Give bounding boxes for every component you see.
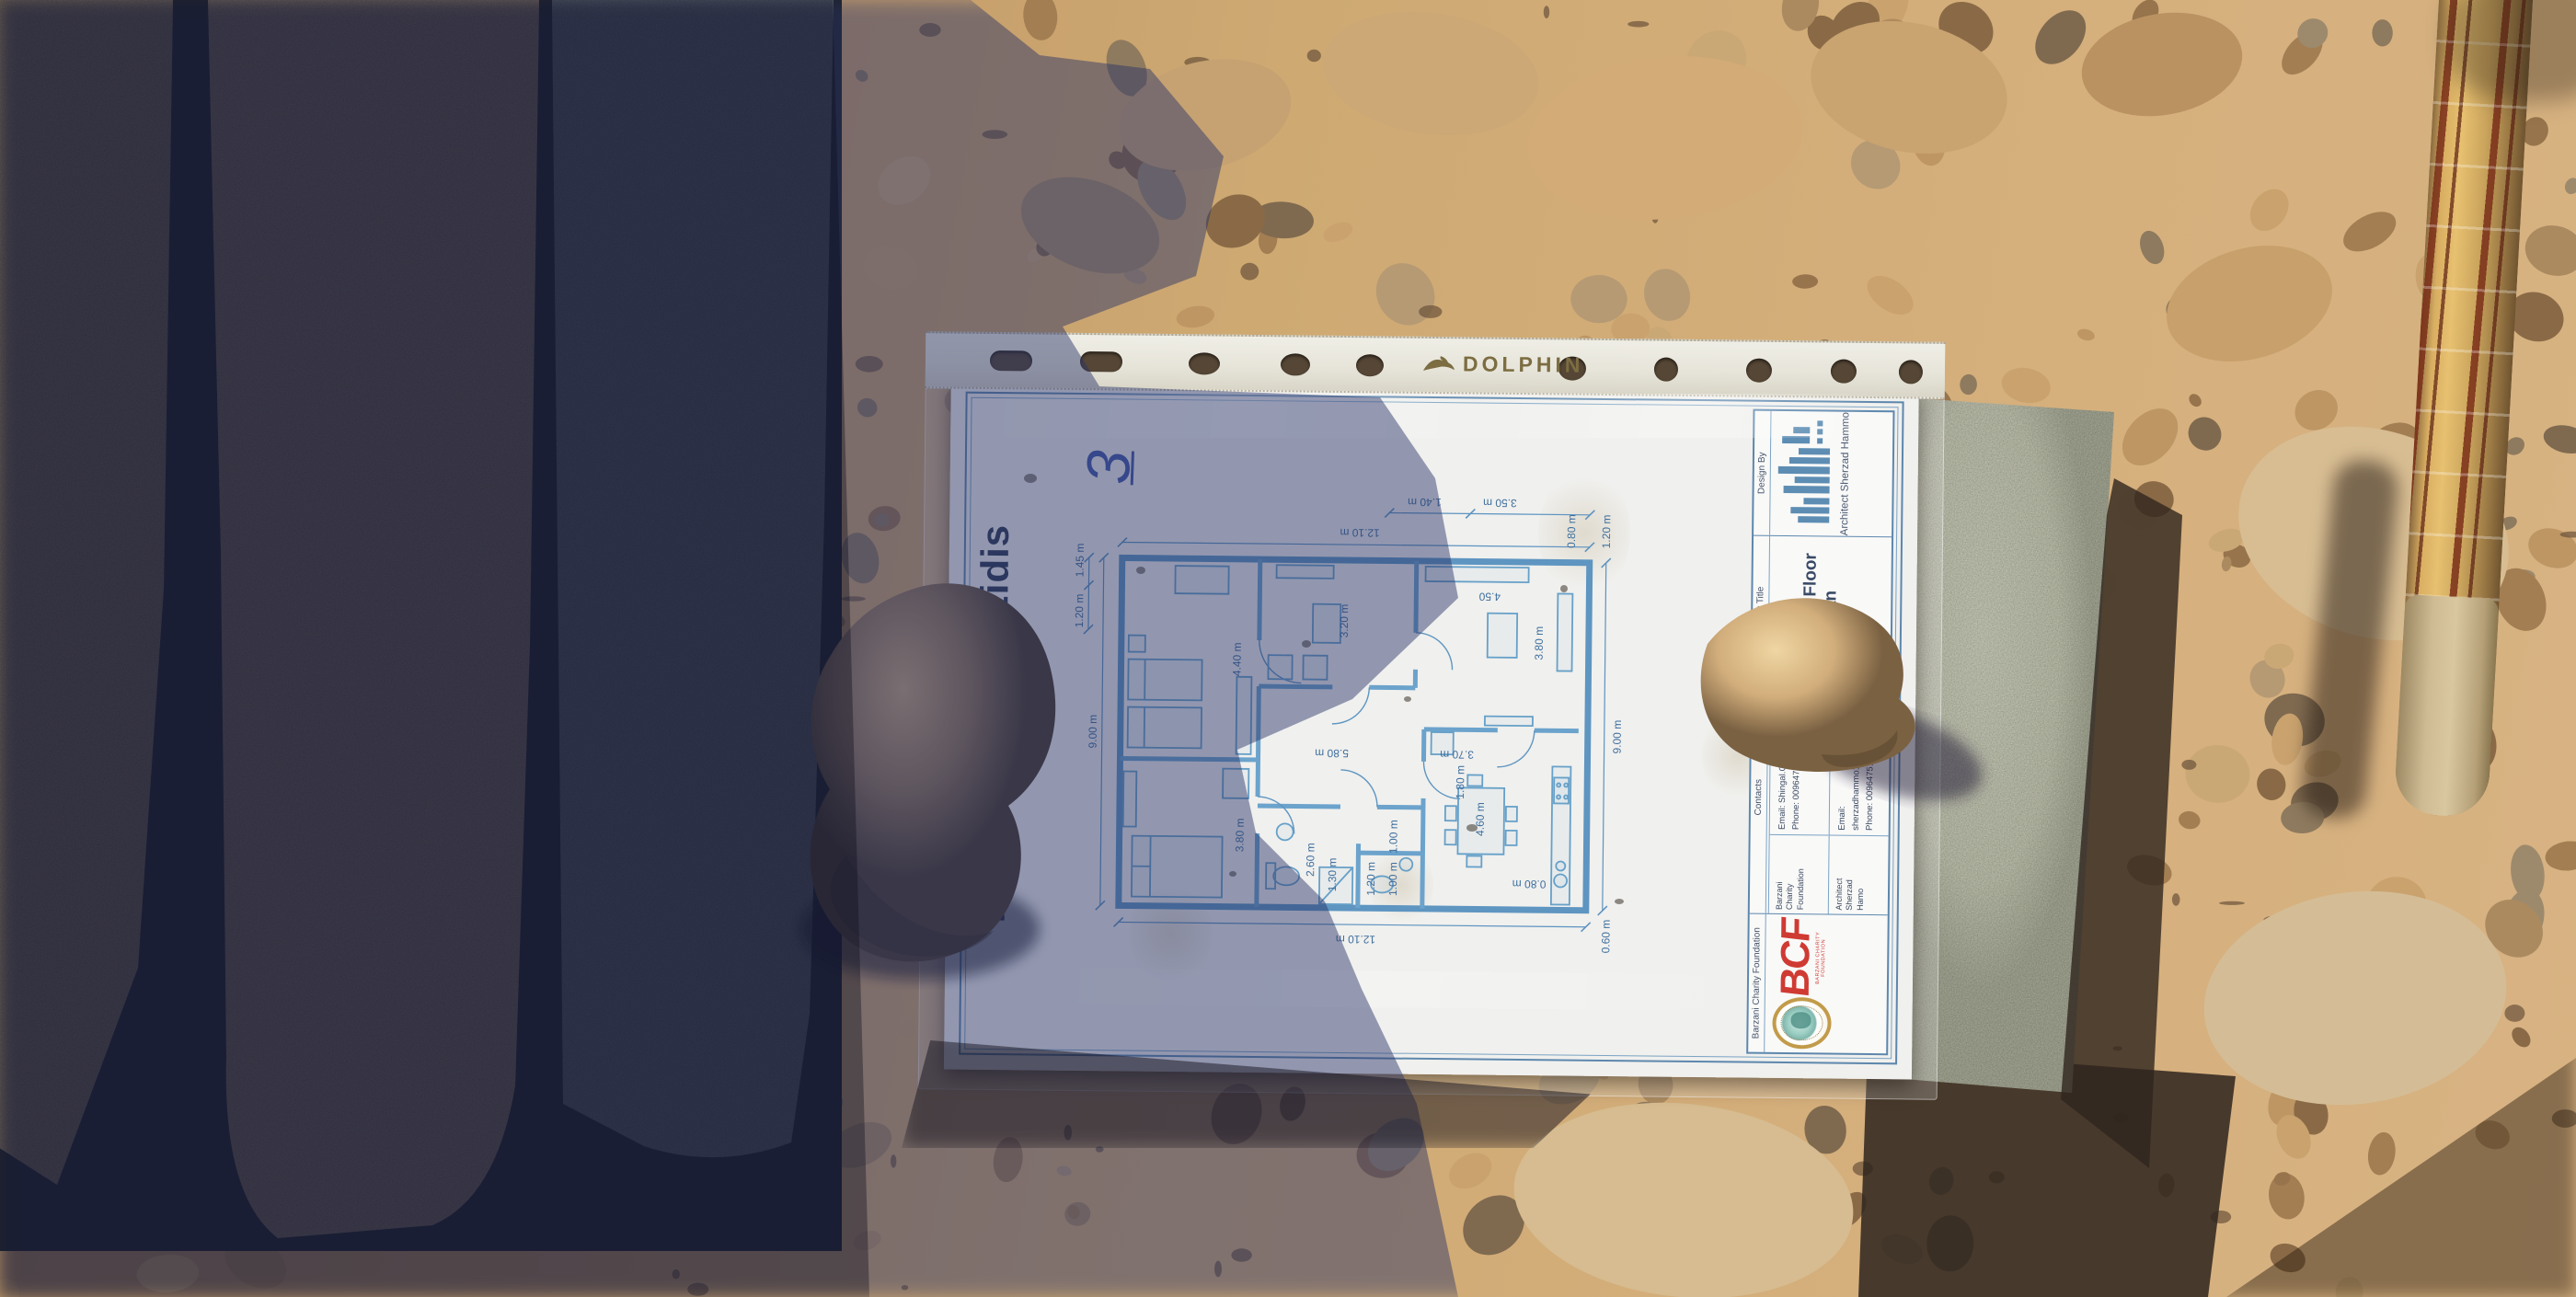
- construction-site-photo: Plan R r Yazidis: [0, 0, 2576, 1297]
- shadow-top-right: [2447, 0, 2576, 101]
